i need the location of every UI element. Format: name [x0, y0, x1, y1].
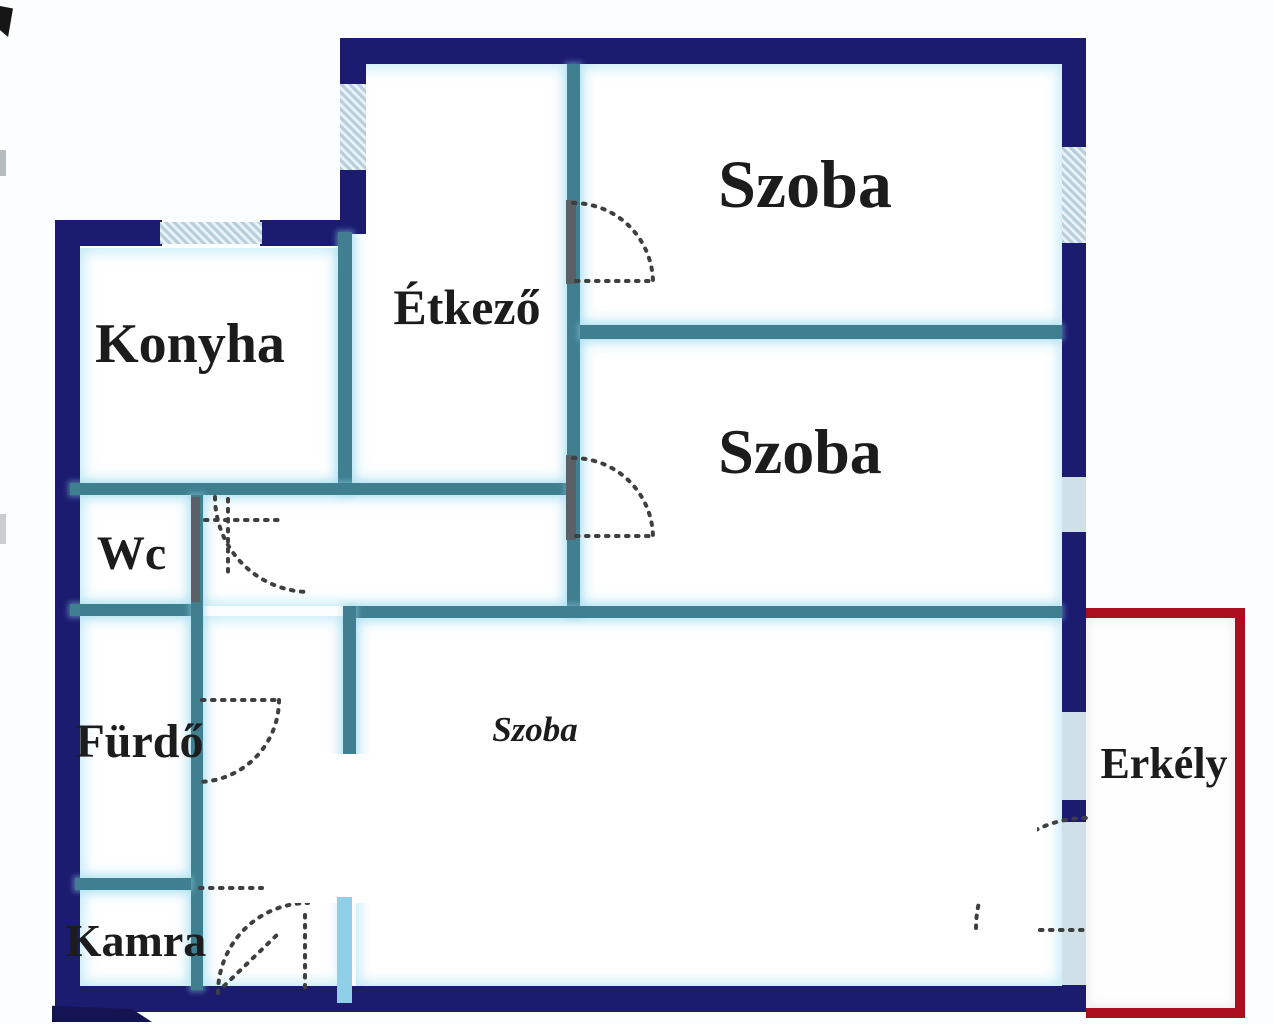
label-furdo: Fürdő [62, 718, 217, 766]
label-szoba-bottom: Szoba [470, 712, 600, 747]
artifact-left-mark-2 [0, 514, 6, 544]
label-konyha: Konyha [84, 316, 296, 372]
door-leaf-entrance [224, 932, 280, 986]
floor-plan: Konyha Étkező Szoba Szoba Szoba Wc Fürdő… [0, 0, 1274, 1024]
accent-bar [337, 897, 352, 1003]
door-arc-szoba-middle [573, 458, 653, 538]
label-kamra: Kamra [56, 918, 216, 964]
label-etkezo: Étkező [368, 282, 566, 332]
artifact-left-mark-1 [0, 150, 6, 176]
erased-white-patch [295, 754, 1037, 903]
label-erkely: Erkély [1086, 742, 1242, 786]
label-wc: Wc [84, 530, 179, 578]
label-szoba-top: Szoba [660, 150, 950, 218]
label-szoba-middle: Szoba [655, 420, 945, 484]
door-arc-szoba-top [573, 203, 653, 283]
